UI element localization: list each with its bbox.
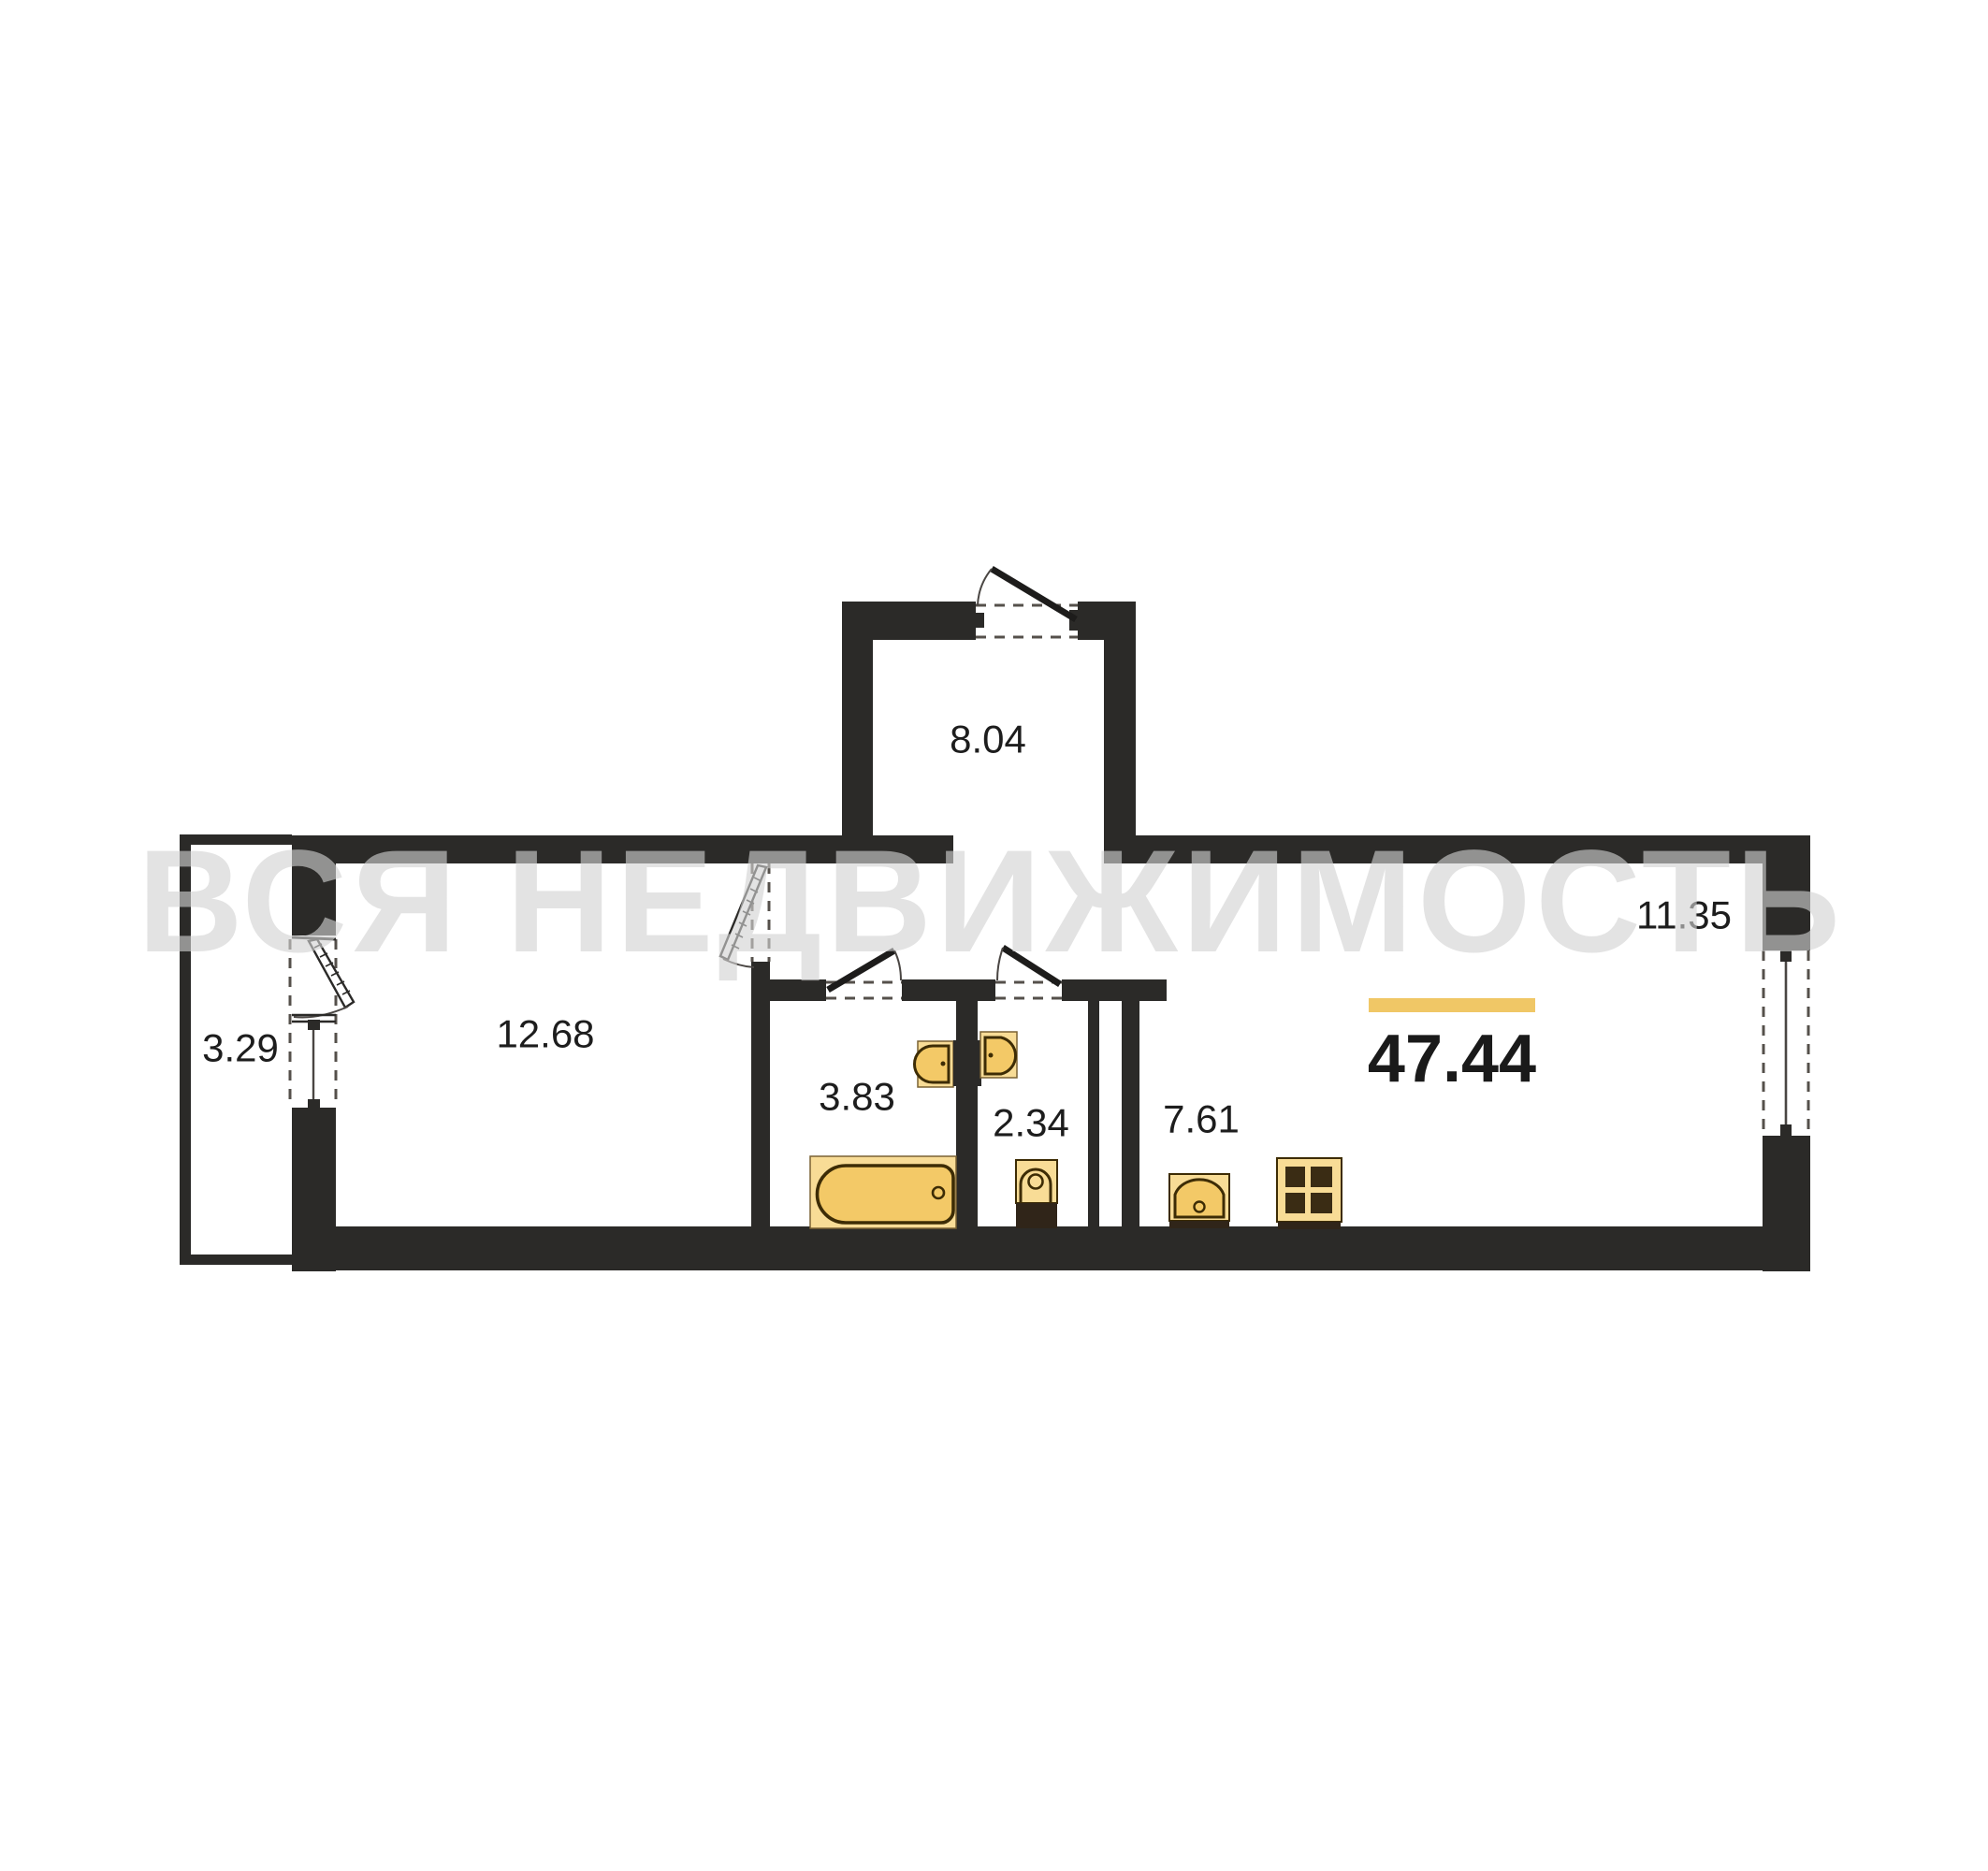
- svg-text:3.83: 3.83: [819, 1075, 895, 1119]
- svg-text:47.44: 47.44: [1368, 1022, 1536, 1096]
- svg-text:8.04: 8.04: [950, 718, 1026, 761]
- svg-text:ВСЯ НЕДВИЖИМОСТЬ: ВСЯ НЕДВИЖИМОСТЬ: [138, 820, 1840, 983]
- svg-text:3.29: 3.29: [202, 1026, 279, 1070]
- svg-text:2.34: 2.34: [993, 1101, 1069, 1145]
- svg-text:7.61: 7.61: [1163, 1097, 1240, 1141]
- svg-text:12.68: 12.68: [496, 1012, 594, 1056]
